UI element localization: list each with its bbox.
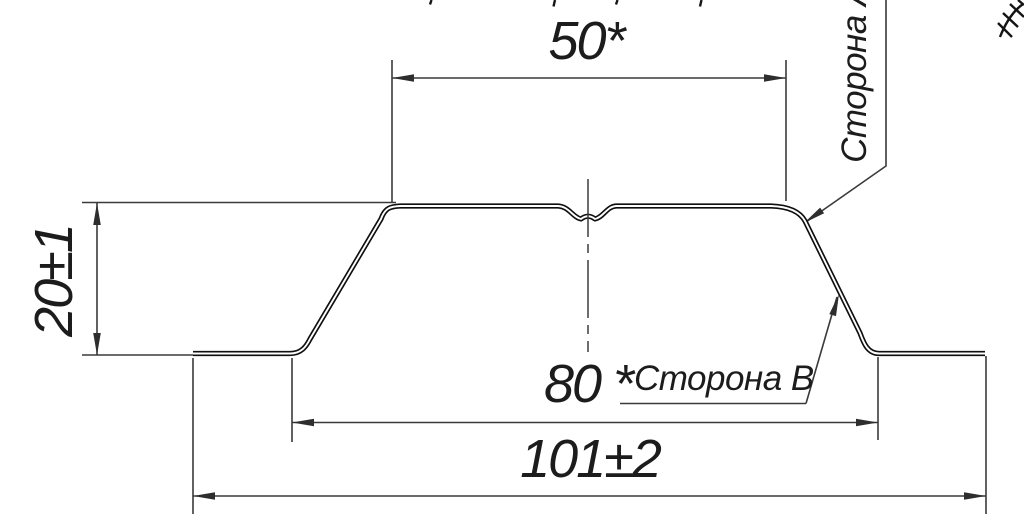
dim-height-text: 20±1	[24, 225, 84, 338]
profile-outer-stroke	[193, 206, 985, 354]
profile-outline	[193, 206, 985, 354]
leader-side-a: Сторона А	[804, 0, 886, 223]
arrowhead	[964, 492, 986, 500]
dim-inner-width-text: 80 *	[544, 354, 636, 414]
arrowhead	[856, 419, 878, 427]
text-remnant-mark	[700, 0, 702, 7]
arrowhead	[764, 74, 786, 82]
label-side-b: Сторона В	[634, 359, 814, 398]
arrowhead	[829, 294, 839, 316]
text-remnant-mark	[430, 0, 432, 5]
arrowhead	[392, 74, 414, 82]
text-remnant-mark	[616, 0, 618, 5]
drawing-sheet: 50* 20±1 80 * 101±2 Сторона А	[0, 0, 1024, 527]
text-remnant-mark	[554, 0, 556, 7]
dimension-top-width: 50*	[392, 11, 786, 202]
arrowhead	[292, 419, 314, 427]
profile-drawing: 50* 20±1 80 * 101±2 Сторона А	[0, 0, 1024, 527]
arrowhead	[93, 203, 101, 225]
dimension-height: 20±1	[24, 203, 396, 356]
leader-side-b: Сторона В	[620, 294, 839, 404]
dim-top-width-text: 50*	[548, 11, 627, 71]
cropped-title-remnants	[430, 0, 702, 7]
cropped-hatched-symbol	[998, 0, 1024, 37]
arrowhead	[93, 333, 101, 355]
label-side-a: Сторона А	[835, 0, 874, 163]
dim-overall-width-text: 101±2	[520, 429, 662, 489]
arrowhead	[193, 492, 215, 500]
